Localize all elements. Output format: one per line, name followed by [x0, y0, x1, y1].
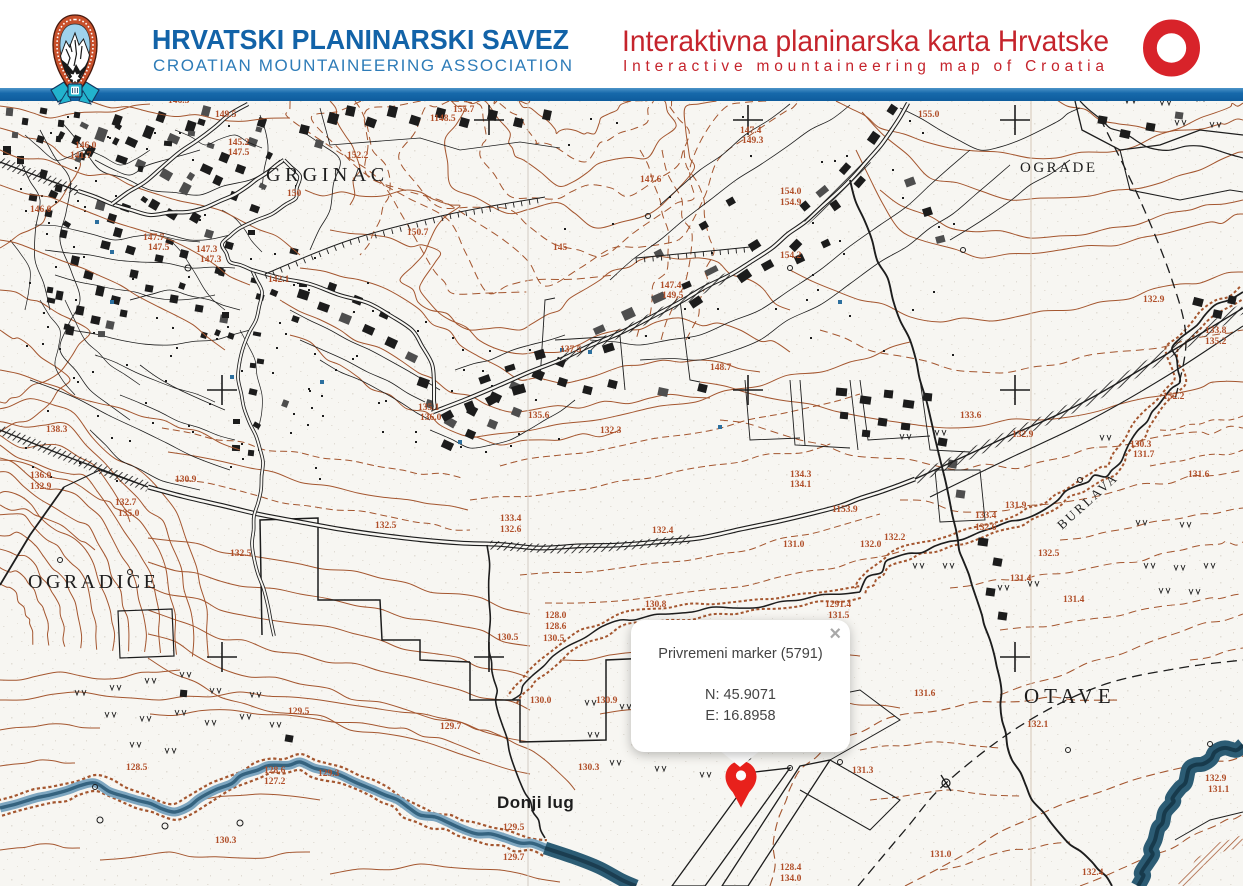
svg-text:130.9: 130.9 — [175, 475, 197, 485]
svg-text:132.9: 132.9 — [1012, 430, 1034, 440]
svg-text:147.5: 147.5 — [228, 148, 250, 158]
svg-text:147.5: 147.5 — [148, 243, 170, 253]
svg-text:131.6: 131.6 — [1188, 470, 1210, 480]
svg-text:141.7: 141.7 — [70, 151, 92, 161]
svg-text:148.7: 148.7 — [710, 363, 732, 373]
svg-text:137.5: 137.5 — [560, 345, 582, 355]
svg-text:128.6: 128.6 — [264, 766, 286, 776]
svg-text:135.1: 135.1 — [418, 403, 440, 413]
svg-text:147.7: 147.7 — [143, 233, 165, 243]
svg-text:129.3: 129.3 — [318, 769, 340, 779]
svg-text:132.5: 132.5 — [375, 521, 397, 531]
svg-text:133.4: 133.4 — [975, 511, 997, 521]
svg-text:146.5: 146.5 — [168, 101, 190, 106]
svg-text:131.3: 131.3 — [852, 766, 874, 776]
svg-text:155.0: 155.0 — [918, 110, 940, 120]
svg-text:132.3: 132.3 — [600, 426, 622, 436]
svg-text:150: 150 — [287, 189, 302, 199]
svg-text:147.3: 147.3 — [196, 245, 218, 255]
svg-text:154.9: 154.9 — [780, 198, 802, 208]
svg-text:129.7: 129.7 — [440, 722, 462, 732]
svg-text:130.3: 130.3 — [1130, 440, 1152, 450]
svg-text:134.1: 134.1 — [790, 480, 812, 490]
svg-text:CROATIAN MOUNTAINEERING ASSOCI: CROATIAN MOUNTAINEERING ASSOCIATION — [153, 56, 572, 75]
svg-text:132.7: 132.7 — [115, 498, 137, 508]
svg-text:149.5: 149.5 — [215, 110, 237, 120]
svg-text:136.0: 136.0 — [420, 413, 442, 423]
svg-text:149.3: 149.3 — [742, 136, 764, 146]
svg-text:OTAVE: OTAVE — [1024, 684, 1116, 708]
svg-text:128.5: 128.5 — [126, 763, 148, 773]
svg-text:128.6: 128.6 — [545, 622, 567, 632]
svg-text:131.7: 131.7 — [1133, 450, 1155, 460]
svg-text:132.6: 132.6 — [975, 523, 997, 533]
svg-text:131.4: 131.4 — [1010, 574, 1032, 584]
svg-text:130.8: 130.8 — [645, 600, 667, 610]
svg-text:132.9: 132.9 — [30, 482, 52, 492]
svg-text:133.4: 133.4 — [500, 514, 522, 524]
svg-text:1148.5: 1148.5 — [430, 114, 456, 124]
svg-text:131.6: 131.6 — [914, 689, 936, 699]
svg-text:127.2: 127.2 — [264, 777, 286, 787]
svg-text:129.5: 129.5 — [503, 823, 525, 833]
svg-text:HRVATSKI PLANINARSKI SAVEZ: HRVATSKI PLANINARSKI SAVEZ — [152, 24, 569, 55]
svg-text:147.4: 147.4 — [660, 281, 682, 291]
svg-text:131.0: 131.0 — [783, 540, 805, 550]
svg-text:Interaktivna planinarska karta: Interaktivna planinarska karta Hrvatske — [622, 25, 1109, 58]
svg-text:132.6: 132.6 — [500, 525, 522, 535]
svg-text:147.3: 147.3 — [200, 255, 222, 265]
svg-text:154.0: 154.0 — [780, 187, 802, 197]
svg-text:146.0: 146.0 — [75, 141, 97, 151]
svg-text:131.1: 131.1 — [1208, 785, 1230, 795]
svg-text:152.2: 152.2 — [1163, 392, 1185, 402]
svg-text:147.4: 147.4 — [740, 126, 762, 136]
svg-text:130.0: 130.0 — [530, 696, 552, 706]
svg-text:135.6: 135.6 — [528, 411, 550, 421]
svg-text:147.6: 147.6 — [640, 175, 662, 185]
svg-text:152.2: 152.2 — [347, 151, 369, 161]
svg-text:142.1: 142.1 — [268, 275, 290, 285]
svg-text:130.3: 130.3 — [578, 763, 600, 773]
svg-text:131.4: 131.4 — [1063, 595, 1085, 605]
svg-text:132.4: 132.4 — [652, 526, 674, 536]
svg-text:146.0: 146.0 — [30, 205, 52, 215]
svg-text:131.9: 131.9 — [1005, 501, 1027, 511]
svg-text:133.6: 133.6 — [960, 411, 982, 421]
svg-text:135.0: 135.0 — [118, 509, 140, 519]
svg-text:129.5: 129.5 — [288, 707, 310, 717]
svg-text:132.1: 132.1 — [1027, 720, 1049, 730]
svg-text:130.9: 130.9 — [596, 696, 618, 706]
svg-text:128.4: 128.4 — [780, 863, 802, 873]
svg-text:132.9: 132.9 — [1205, 774, 1227, 784]
svg-text:134.3: 134.3 — [790, 470, 812, 480]
svg-text:OGRADICE: OGRADICE — [28, 571, 159, 593]
svg-text:155.7: 155.7 — [453, 105, 475, 115]
svg-text:132.0: 132.0 — [860, 540, 882, 550]
svg-text:OGRADE: OGRADE — [1020, 160, 1098, 176]
svg-text:135.2: 135.2 — [1205, 337, 1227, 347]
svg-text:132.9: 132.9 — [1143, 295, 1165, 305]
svg-text:1153.9: 1153.9 — [832, 505, 858, 515]
svg-text:129.7: 129.7 — [503, 853, 525, 863]
svg-text:130.3: 130.3 — [215, 836, 237, 846]
svg-text:154.2: 154.2 — [780, 251, 802, 261]
svg-text:130.5: 130.5 — [497, 633, 519, 643]
svg-text:150.7: 150.7 — [407, 228, 429, 238]
svg-text:149.5: 149.5 — [662, 291, 684, 301]
svg-text:132.5: 132.5 — [230, 549, 252, 559]
svg-text:133.8: 133.8 — [1205, 326, 1227, 336]
svg-text:GRGINAC: GRGINAC — [266, 164, 389, 186]
svg-text:145.2: 145.2 — [228, 138, 250, 148]
svg-text:145: 145 — [553, 243, 568, 253]
svg-text:132.4: 132.4 — [1082, 868, 1104, 878]
svg-text:Interactive mountaineering map: Interactive mountaineering map of Croati… — [623, 58, 1104, 75]
svg-text:138.3: 138.3 — [46, 425, 68, 435]
svg-text:134.0: 134.0 — [780, 874, 802, 884]
svg-text:128.0: 128.0 — [545, 611, 567, 621]
svg-text:131.0: 131.0 — [930, 850, 952, 860]
svg-text:132.2: 132.2 — [884, 533, 906, 543]
svg-text:130.5: 130.5 — [543, 634, 565, 644]
svg-text:132.5: 132.5 — [1038, 549, 1060, 559]
svg-text:Donji lug: Donji lug — [497, 793, 574, 812]
svg-text:136.0: 136.0 — [30, 471, 52, 481]
svg-text:1291.4: 1291.4 — [825, 600, 851, 610]
